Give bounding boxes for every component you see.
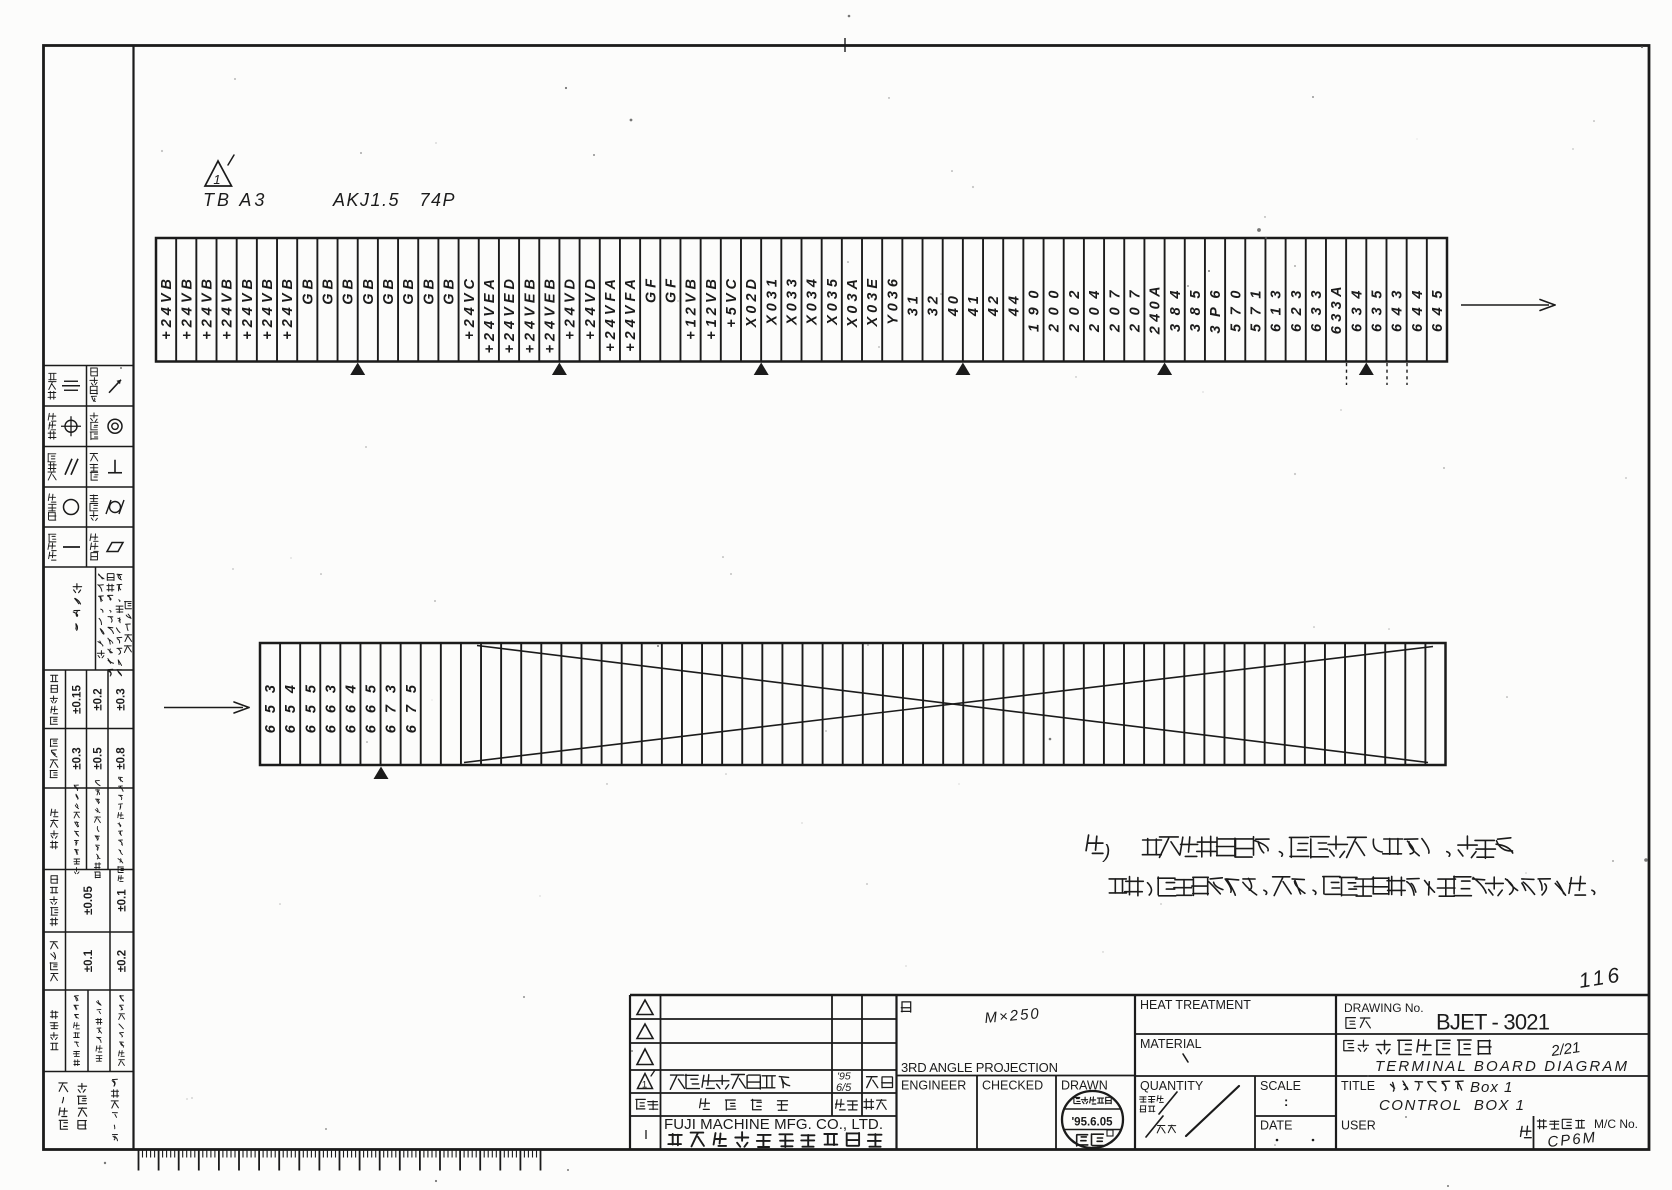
svg-text:+24VED: +24VED (502, 275, 518, 353)
svg-text:6/5: 6/5 (836, 1082, 852, 1094)
svg-text:M/C No.: M/C No. (1594, 1117, 1638, 1131)
svg-text:+24VD: +24VD (583, 275, 599, 340)
svg-text:673: 673 (384, 673, 400, 733)
svg-text:1: 1 (213, 172, 220, 187)
svg-text:DATE: DATE (1260, 1119, 1292, 1133)
svg-text:200: 200 (1047, 282, 1063, 333)
svg-text:X03E: X03E (865, 275, 881, 327)
svg-text:+24VEB: +24VEB (522, 275, 538, 353)
svg-text:±0.15: ±0.15 (72, 685, 84, 714)
svg-text:3RD ANGLE PROJECTION: 3RD ANGLE PROJECTION (901, 1060, 1058, 1075)
svg-text:SCALE: SCALE (1260, 1079, 1301, 1093)
svg-text:190: 190 (1027, 282, 1043, 332)
svg-text:3P6: 3P6 (1208, 282, 1224, 334)
svg-text:CHECKED: CHECKED (982, 1079, 1043, 1093)
svg-text:240A: 240A (1148, 282, 1164, 335)
svg-text:X03A: X03A (845, 275, 861, 328)
svg-text:X031: X031 (764, 275, 780, 326)
svg-text:634: 634 (1349, 282, 1365, 332)
svg-text:X034: X034 (805, 275, 821, 326)
svg-text:31: 31 (905, 292, 921, 316)
svg-text:202: 202 (1067, 282, 1083, 333)
svg-text:42: 42 (986, 292, 1002, 317)
svg-text:644: 644 (1410, 282, 1426, 332)
svg-text:TERMINAL BOARD DIAGRAM: TERMINAL BOARD DIAGRAM (1375, 1058, 1628, 1075)
svg-text:X033: X033 (784, 275, 800, 326)
svg-text:BJET - 3021: BJET - 3021 (1436, 1010, 1550, 1035)
svg-text:385: 385 (1188, 282, 1204, 332)
svg-text:384: 384 (1168, 282, 1184, 332)
svg-text:643: 643 (1390, 282, 1406, 332)
svg-text:+24VB: +24VB (240, 275, 256, 340)
svg-text:+24VEA: +24VEA (482, 275, 498, 353)
svg-text:FUJI MACHINE MFG. CO., LTD.: FUJI MACHINE MFG. CO., LTD. (664, 1116, 883, 1133)
svg-text:+24VC: +24VC (462, 275, 478, 340)
svg-text:GF: GF (643, 275, 659, 303)
svg-text:+12VB: +12VB (704, 275, 720, 340)
svg-text:570: 570 (1228, 282, 1244, 332)
svg-text:USER: USER (1341, 1119, 1376, 1133)
svg-text::: : (1284, 1094, 1288, 1109)
svg-text:571: 571 (1248, 282, 1264, 332)
svg-text:+24VB: +24VB (159, 275, 175, 340)
svg-text:±0.3: ±0.3 (116, 688, 128, 710)
svg-text:±0.1: ±0.1 (117, 889, 129, 912)
svg-text:+24VB: +24VB (260, 275, 276, 340)
svg-text:GB: GB (361, 275, 377, 305)
svg-text:40: 40 (946, 292, 962, 317)
svg-text:+24VB: +24VB (220, 275, 236, 340)
svg-text:+24VB: +24VB (199, 275, 215, 340)
svg-text:655: 655 (303, 673, 319, 733)
svg-text:41: 41 (966, 292, 982, 317)
svg-text:±0.5: ±0.5 (93, 747, 105, 770)
svg-text:MATERIAL: MATERIAL (1140, 1037, 1202, 1051)
svg-text:GF: GF (663, 275, 679, 303)
svg-text:TITLE: TITLE (1341, 1079, 1375, 1093)
svg-text:±0.2: ±0.2 (117, 950, 129, 972)
svg-text:AKJ1.5 74P: AKJ1.5 74P (332, 190, 456, 210)
svg-text:32: 32 (926, 292, 942, 316)
svg-text:): ) (1102, 842, 1110, 863)
svg-text:653: 653 (263, 673, 279, 733)
svg-text:Box 1: Box 1 (1470, 1079, 1513, 1096)
svg-text:GB: GB (442, 275, 458, 305)
svg-text:GB: GB (421, 275, 437, 305)
svg-text:+24VFA: +24VFA (603, 275, 619, 352)
svg-text:+24VB: +24VB (280, 275, 296, 340)
svg-text:GB: GB (300, 275, 316, 305)
svg-text:'95: '95 (837, 1071, 851, 1083)
svg-text:664: 664 (343, 673, 359, 733)
svg-text:±0.8: ±0.8 (116, 747, 128, 770)
svg-text:±0.05: ±0.05 (83, 886, 95, 915)
svg-text:DRAWN: DRAWN (1061, 1079, 1108, 1093)
svg-text:613: 613 (1269, 282, 1285, 332)
svg-text:+12VB: +12VB (684, 275, 700, 340)
svg-text:645: 645 (1430, 282, 1446, 332)
svg-text:±0.2: ±0.2 (93, 688, 105, 710)
svg-text:+24VD: +24VD (563, 275, 579, 340)
svg-text:TB A3: TB A3 (203, 190, 267, 210)
svg-text:665: 665 (364, 673, 380, 733)
svg-text:X035: X035 (825, 275, 841, 326)
svg-text:204: 204 (1087, 282, 1103, 333)
svg-text:'95.6.05: '95.6.05 (1071, 1117, 1113, 1129)
svg-text:HEAT TREATMENT: HEAT TREATMENT (1140, 998, 1251, 1012)
svg-text:+5VC: +5VC (724, 275, 740, 328)
svg-text:+24VFA: +24VFA (623, 275, 639, 352)
svg-text:X02D: X02D (744, 275, 760, 328)
svg-text:±0.1: ±0.1 (83, 949, 95, 972)
svg-text:Y036: Y036 (885, 275, 901, 325)
svg-text:ENGINEER: ENGINEER (901, 1079, 966, 1093)
svg-text:663: 663 (323, 673, 339, 733)
svg-text:DRAWING No.: DRAWING No. (1344, 1001, 1424, 1015)
svg-text:QUANTITY: QUANTITY (1140, 1079, 1204, 1093)
svg-text:635: 635 (1369, 282, 1385, 332)
svg-text:GB: GB (341, 275, 357, 305)
svg-text:633: 633 (1309, 282, 1325, 332)
svg-text:633A: 633A (1329, 282, 1345, 334)
svg-text:GB: GB (401, 275, 417, 305)
svg-text:±0.3: ±0.3 (72, 747, 84, 769)
svg-text:+24VB: +24VB (179, 275, 195, 340)
svg-text:GB: GB (321, 275, 337, 305)
svg-text:GB: GB (381, 275, 397, 305)
svg-text:44: 44 (1006, 292, 1022, 317)
svg-text:654: 654 (283, 673, 299, 733)
svg-text:207: 207 (1107, 282, 1123, 333)
svg-text:675: 675 (404, 673, 420, 733)
svg-text:623: 623 (1289, 282, 1305, 332)
svg-text:+24VEB: +24VEB (542, 275, 558, 353)
svg-text:207: 207 (1127, 282, 1143, 333)
svg-text:1: 1 (642, 1080, 647, 1091)
